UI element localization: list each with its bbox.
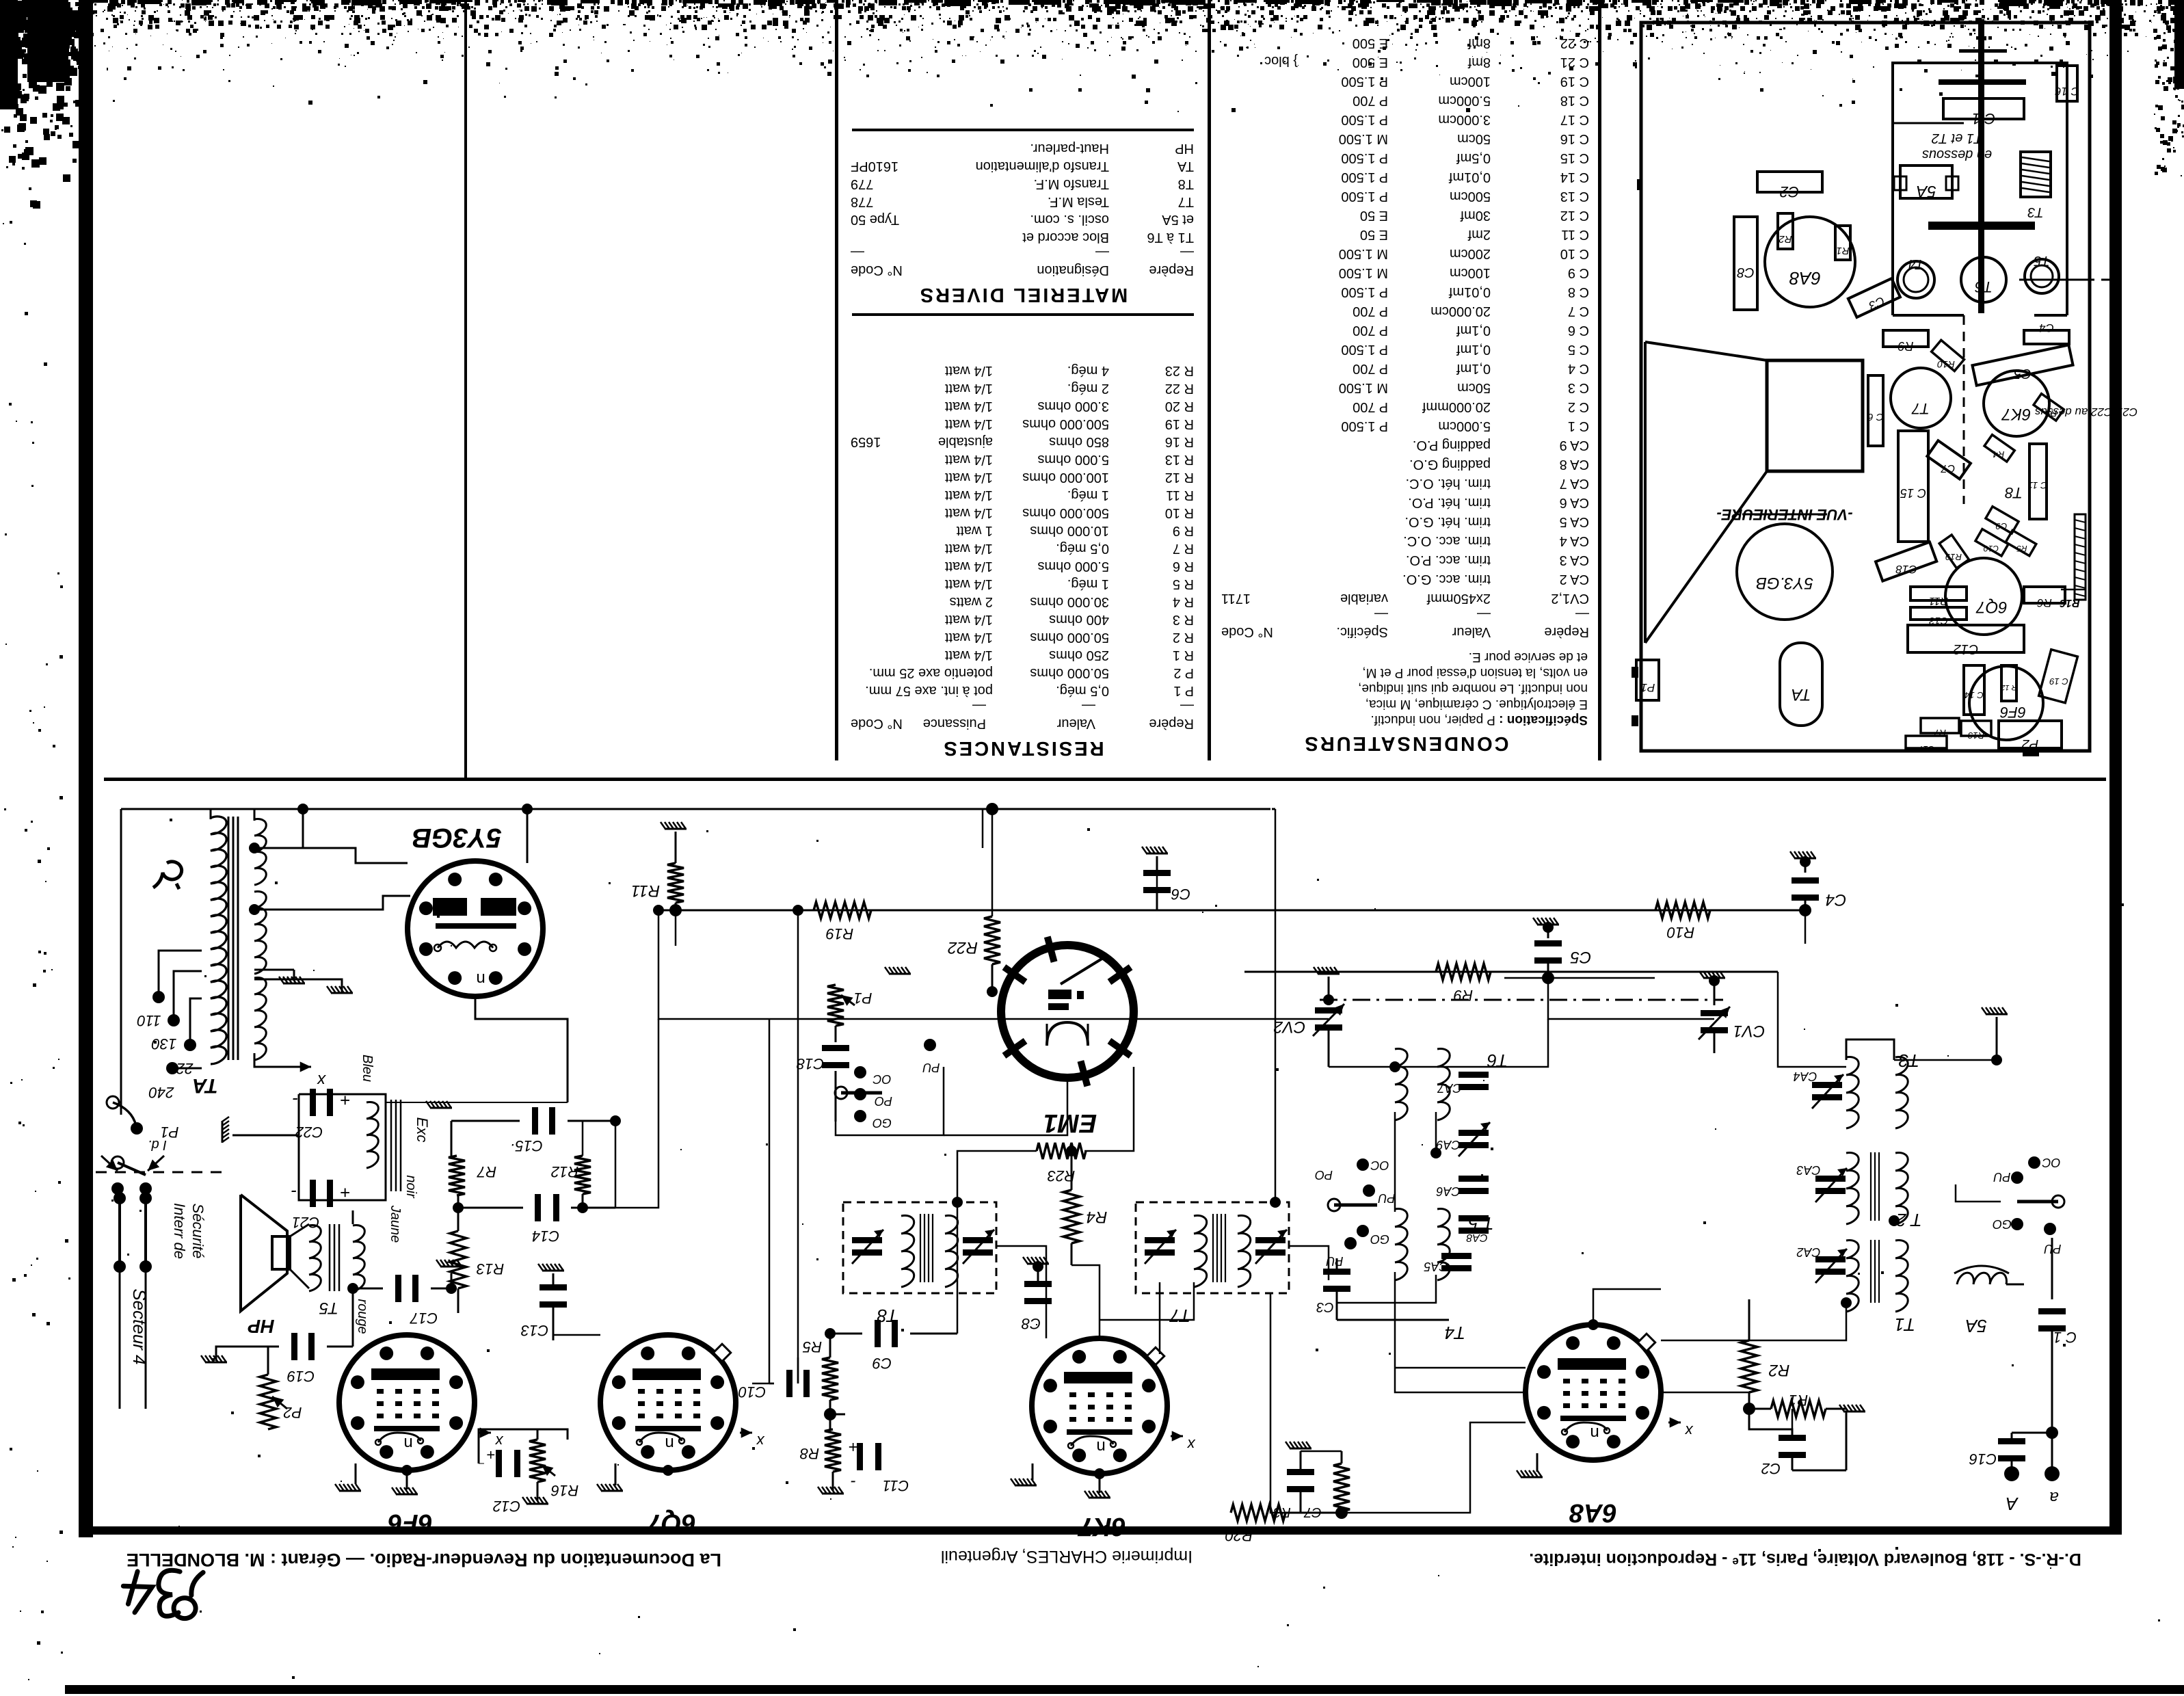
svg-text:PO: PO	[875, 1094, 892, 1108]
svg-text:+: +	[486, 1446, 495, 1463]
svg-text:5A: 5A	[1965, 1316, 1987, 1336]
svg-text:C11: C11	[883, 1477, 909, 1494]
svg-text:C5: C5	[1570, 948, 1591, 966]
svg-text:x: x	[317, 1071, 326, 1089]
svg-text:C12: C12	[493, 1498, 520, 1515]
svg-text:C 1: C 1	[2053, 1329, 2077, 1346]
svg-text:T5: T5	[319, 1299, 338, 1317]
svg-text:GO: GO	[1370, 1232, 1389, 1246]
svg-text:OC: OC	[1370, 1158, 1389, 1172]
svg-text:T4: T4	[1445, 1323, 1465, 1343]
svg-text:C19: C19	[287, 1368, 315, 1385]
svg-text:-: -	[292, 1090, 298, 1111]
svg-text:T6: T6	[1974, 278, 1992, 295]
svg-text:C12: C12	[1954, 641, 1979, 657]
svg-text:C17: C17	[410, 1310, 438, 1327]
svg-text:240: 240	[148, 1084, 174, 1101]
svg-text:C16: C16	[1969, 1450, 1997, 1468]
svg-text:R12: R12	[551, 1163, 578, 1180]
svg-text:I d.: I d.	[148, 1137, 167, 1152]
svg-text:C4: C4	[2039, 321, 2054, 334]
svg-text:TA: TA	[1792, 685, 1811, 704]
svg-text:P2: P2	[284, 1404, 302, 1421]
svg-text:C9: C9	[1996, 521, 2008, 531]
svg-text:C7: C7	[1941, 462, 1956, 474]
svg-text:R6: R6	[2037, 596, 2052, 609]
svg-text:P1: P1	[854, 990, 873, 1007]
svg-text:6A8: 6A8	[1789, 268, 1821, 289]
svg-text:C 11: C 11	[2028, 480, 2048, 491]
svg-text:CA6: CA6	[1436, 1184, 1461, 1198]
svg-text:La Documentation du Revendeur-: La Documentation du Revendeur-Radio. — G…	[126, 1550, 721, 1570]
svg-text:-: -	[291, 1182, 297, 1203]
svg-text:+: +	[849, 1437, 858, 1456]
svg-text:R5: R5	[802, 1338, 822, 1355]
svg-text:R2: R2	[1779, 233, 1792, 245]
svg-text:R10: R10	[1666, 924, 1694, 941]
svg-text:6F6: 6F6	[387, 1509, 432, 1537]
svg-text:R8: R8	[799, 1445, 819, 1462]
svg-text:CA2: CA2	[1796, 1245, 1820, 1259]
svg-text:GO: GO	[873, 1116, 892, 1130]
svg-text:C2: C2	[1780, 183, 1799, 200]
svg-text:D.-R.-S. - 118, Boulevard Volt: D.-R.-S. - 118, Boulevard Voltaire, Pari…	[1529, 1550, 2081, 1569]
svg-text:CA8: CA8	[1466, 1232, 1487, 1243]
svg-text:C10: C10	[738, 1383, 766, 1401]
svg-text:6A8: 6A8	[1569, 1498, 1617, 1527]
svg-text:T6: T6	[1487, 1050, 1508, 1071]
svg-text:PU: PU	[1378, 1191, 1396, 1205]
svg-text:Bleu: Bleu	[360, 1055, 375, 1082]
svg-text:R10: R10	[1937, 359, 1955, 370]
svg-text:R19: R19	[826, 925, 853, 942]
svg-text:6F6: 6F6	[1999, 704, 2026, 721]
svg-text:C15·: C15·	[510, 1137, 543, 1154]
svg-text:CV2: CV2	[1274, 1018, 1306, 1036]
svg-text:OC: OC	[2041, 1156, 2060, 1169]
svg-text:C 1: C 1	[1972, 110, 1995, 127]
svg-text:R1: R1	[1789, 1392, 1808, 1409]
svg-text:C9: C9	[873, 1355, 892, 1372]
svg-text:C 16: C 16	[2055, 85, 2079, 98]
svg-text:PU: PU	[922, 1061, 940, 1074]
svg-text:T 2: T 2	[1896, 1210, 1922, 1230]
svg-text:C3: C3	[1316, 1299, 1334, 1314]
svg-text:n: n	[1096, 1437, 1105, 1456]
svg-text:6Q7: 6Q7	[645, 1509, 696, 1537]
svg-text:rouge: rouge	[355, 1299, 370, 1334]
svg-text:Exc: Exc	[414, 1117, 431, 1143]
svg-text:C 15: C 15	[1900, 486, 1926, 500]
svg-text:+: +	[340, 1182, 350, 1203]
svg-text:C22: C22	[295, 1124, 323, 1141]
svg-text:x: x	[1685, 1422, 1694, 1440]
svg-text:R13: R13	[476, 1260, 504, 1277]
svg-text:T8: T8	[877, 1306, 898, 1326]
svg-text:T5: T5	[2033, 253, 2049, 268]
svg-text:C8: C8	[1737, 265, 1755, 280]
svg-text:+: +	[340, 1090, 350, 1111]
svg-text:C21: C21	[292, 1214, 319, 1231]
svg-text:-: -	[851, 1473, 856, 1492]
svg-text:C4: C4	[1826, 890, 1847, 909]
svg-text:R22: R22	[948, 938, 978, 957]
svg-text:Interr de: Interr de	[171, 1203, 188, 1259]
svg-text:noir: noir	[403, 1175, 418, 1199]
svg-text:Sécurité: Sécurité	[189, 1204, 207, 1259]
svg-text:T1: T1	[1895, 1314, 1915, 1335]
svg-text:5A: 5A	[1916, 182, 1936, 200]
svg-text:HP: HP	[248, 1316, 274, 1337]
svg-text:C8: C8	[1021, 1315, 1041, 1332]
svg-text:T8: T8	[2004, 484, 2022, 501]
svg-text:R9: R9	[1897, 339, 1913, 353]
svg-text:R4: R4	[1993, 449, 2005, 460]
svg-text:C13: C13	[520, 1322, 548, 1339]
svg-text:P1: P1	[1641, 681, 1655, 694]
svg-text:R2: R2	[1769, 1361, 1790, 1379]
svg-text:T4: T4	[1908, 256, 1923, 271]
svg-text:C14: C14	[532, 1228, 559, 1245]
svg-text:C 19: C 19	[2049, 676, 2068, 687]
svg-text:x: x	[756, 1433, 765, 1450]
svg-text:a: a	[2049, 1488, 2058, 1507]
svg-text:A: A	[2006, 1494, 2019, 1514]
svg-text:EM1: EM1	[1043, 1109, 1097, 1137]
svg-text:CA7: CA7	[1437, 1081, 1462, 1095]
svg-text:C21-C22 au dessus: C21-C22 au dessus	[2034, 406, 2138, 419]
svg-text:C5: C5	[2013, 366, 2031, 381]
svg-text:R4: R4	[1087, 1208, 1108, 1226]
svg-text:CA3: CA3	[1796, 1163, 1820, 1177]
svg-text:T1 et T2: T1 et T2	[1932, 131, 1982, 146]
svg-text:T3: T3	[2027, 204, 2043, 220]
svg-text:C2: C2	[1761, 1460, 1781, 1477]
svg-text:Imprimerie CHARLES, Argenteui: Imprimerie CHARLES, Argenteuil	[941, 1547, 1193, 1566]
svg-text:TA: TA	[192, 1074, 218, 1097]
svg-text:n: n	[476, 970, 485, 988]
svg-text:OC: OC	[872, 1072, 891, 1086]
svg-text:6Q7: 6Q7	[1975, 598, 2008, 616]
svg-text:R20: R20	[1225, 1527, 1253, 1544]
svg-text:n: n	[403, 1434, 412, 1453]
svg-text:x: x	[495, 1433, 504, 1450]
svg-text:C18: C18	[796, 1055, 824, 1072]
svg-text:C 6: C 6	[1867, 411, 1884, 423]
svg-text:6K7: 6K7	[2001, 405, 2031, 423]
svg-text:110: 110	[137, 1012, 161, 1029]
svg-text:5Y3GB: 5Y3GB	[412, 823, 501, 853]
svg-text:CV1: CV1	[1733, 1022, 1766, 1040]
svg-text:R16: R16	[550, 1482, 578, 1499]
svg-text:PO: PO	[1315, 1168, 1333, 1182]
svg-text:C10: C10	[1984, 544, 1999, 553]
svg-text:R 12: R 12	[2001, 683, 2016, 691]
svg-text:R13: R13	[1967, 730, 1984, 741]
svg-text:en dessous: en dessous	[1922, 147, 1992, 162]
svg-text:R5: R5	[2016, 544, 2027, 553]
svg-text:R9: R9	[1454, 987, 1473, 1004]
svg-text:T7: T7	[1169, 1306, 1190, 1326]
svg-text:n: n	[665, 1434, 674, 1453]
svg-text:C18: C18	[1895, 563, 1917, 576]
svg-text:R1: R1	[1836, 245, 1849, 256]
svg-text:GO: GO	[1993, 1217, 2012, 1231]
svg-text:R19: R19	[1945, 552, 1962, 562]
svg-text:6K7: 6K7	[1077, 1512, 1126, 1541]
svg-text:R11: R11	[631, 882, 660, 900]
svg-text:R7: R7	[477, 1163, 496, 1180]
svg-text:C17: C17	[1917, 744, 1934, 754]
svg-text:C 14: C 14	[1965, 690, 1983, 700]
svg-text:CA4: CA4	[1793, 1070, 1817, 1083]
svg-text:5Y3.GB: 5Y3.GB	[1756, 574, 1813, 592]
svg-text:C6: C6	[1171, 886, 1190, 903]
svg-text:T7: T7	[1911, 400, 1929, 417]
svg-text:PU: PU	[1993, 1170, 2011, 1184]
svg-text:Jaune: Jaune	[388, 1205, 403, 1243]
svg-text:130: 130	[151, 1035, 176, 1052]
svg-text:n: n	[1590, 1424, 1599, 1442]
svg-text:x: x	[1187, 1436, 1196, 1453]
